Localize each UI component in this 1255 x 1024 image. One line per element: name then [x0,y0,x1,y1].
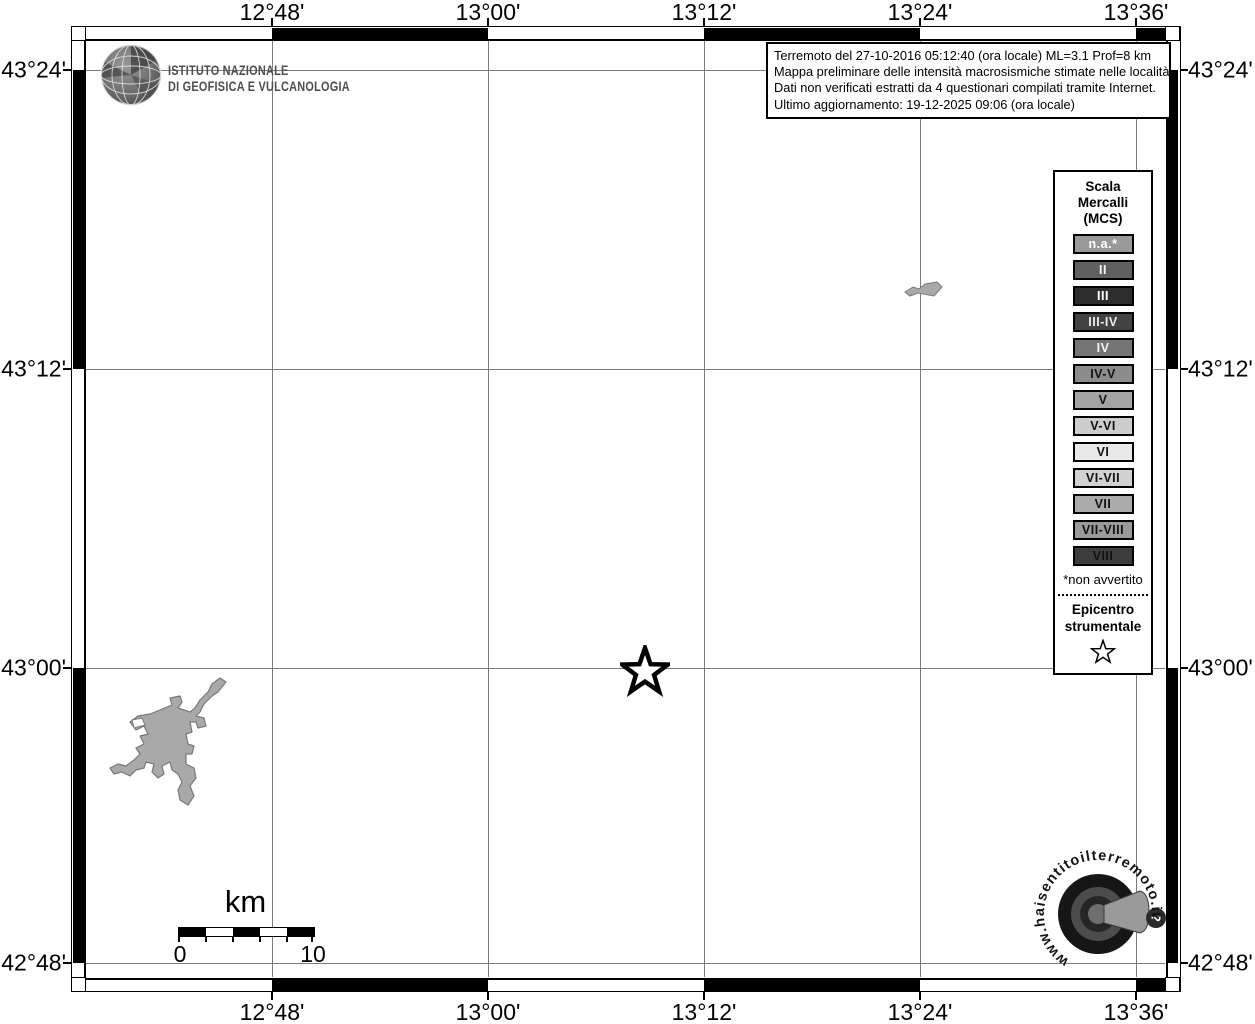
ingv-globe-icon [100,44,162,106]
scalebar-tick [286,936,288,942]
frame-band-segment [272,28,488,40]
axis-label-lon: 13°00' [456,999,521,1024]
axis-tick [1180,962,1188,964]
legend-separator [1058,594,1148,596]
axis-label-lon: 13°12' [672,0,737,26]
axis-label-lon: 13°24' [888,999,953,1024]
axis-label-lat: 43°24' [0,57,66,84]
ingv-name-line2: DI GEOFISICA E VULCANOLOGIA [168,78,350,94]
axis-label-lon: 13°12' [672,999,737,1024]
legend-star-icon [1090,639,1116,665]
frame-band-segment [1136,28,1166,40]
event-info-box: Terremoto del 27-10-2016 05:12:40 (ora l… [766,42,1171,119]
frame-band-segment [73,70,85,369]
axis-tick [1180,69,1188,71]
event-info-line1: Terremoto del 27-10-2016 05:12:40 (ora l… [774,48,1163,64]
scalebar-tick [205,936,207,942]
axis-tick [1180,368,1188,370]
epicenter-star-icon [620,645,670,697]
legend-item: VIII [1073,546,1134,566]
frame-corner [1165,26,1180,41]
scalebar-tick [232,936,234,942]
event-info-line4: Ultimo aggiornamento: 19-12-2025 09:06 (… [774,97,1163,113]
legend-item: V-VI [1073,416,1134,436]
legend-item: IV-V [1073,364,1134,384]
axis-label-lat: 43°00' [0,655,66,682]
frame-band-segment [704,979,920,991]
map-frame-inner [84,39,1168,980]
axis-label-lat: 42°48' [0,950,66,977]
frame-band-segment [73,668,85,963]
axis-label-lat: 43°12' [1188,356,1253,383]
legend-item: IV [1073,338,1134,358]
ingv-logo [100,44,162,106]
ingv-name-line1: ISTITUTO NAZIONALE [168,62,288,78]
axis-label-lat: 43°00' [1188,655,1253,682]
axis-label-lon: 12°48' [240,999,305,1024]
frame-corner [71,977,86,992]
event-info-line3: Dati non verificati estratti da 4 questi… [774,80,1163,96]
axis-label-lon: 13°36' [1104,0,1169,26]
legend-footnote: *non avvertito [1055,572,1151,587]
frame-corner [71,26,86,41]
axis-label-lon: 13°00' [456,0,521,26]
legend-epicenter-label: Epicentro strumentale [1058,601,1148,635]
hsit-watermark-logo: ? www.haisentitoilterremoto.it [1028,846,1168,986]
scalebar [178,927,315,937]
legend-item: V [1073,390,1134,410]
axis-label-lon: 13°24' [888,0,953,26]
legend-item: III [1073,286,1134,306]
axis-label-lon: 12°48' [240,0,305,26]
event-info-line2: Mappa preliminare delle intensità macros… [774,64,1163,80]
axis-tick [1180,667,1188,669]
axis-label-lat: 43°12' [0,356,66,383]
scalebar-unit-label: km [178,884,313,920]
legend-item: VII [1073,494,1134,514]
macroseismic-map: 12°48' 13°00' 13°12' 13°24' 13°36' 12°48… [0,0,1255,1024]
legend-title: Scala Mercalli (MCS) [1067,179,1139,227]
intensity-legend: Scala Mercalli (MCS) n.a.* II III III-IV… [1053,170,1153,675]
legend-item: III-IV [1073,312,1134,332]
legend-item: II [1073,260,1134,280]
legend-item: n.a.* [1073,234,1134,254]
axis-label-lat: 42°48' [1188,950,1253,977]
axis-label-lon: 13°36' [1104,999,1169,1024]
scalebar-end-label: 10 [300,941,326,968]
legend-item: VI-VII [1073,468,1134,488]
legend-item: VII-VIII [1073,520,1134,540]
axis-label-lat: 43°24' [1188,57,1253,84]
scalebar-start-label: 0 [174,941,187,968]
frame-band-segment [272,979,488,991]
frame-band-segment [704,28,920,40]
scalebar-tick [259,936,261,942]
legend-item: VI [1073,442,1134,462]
